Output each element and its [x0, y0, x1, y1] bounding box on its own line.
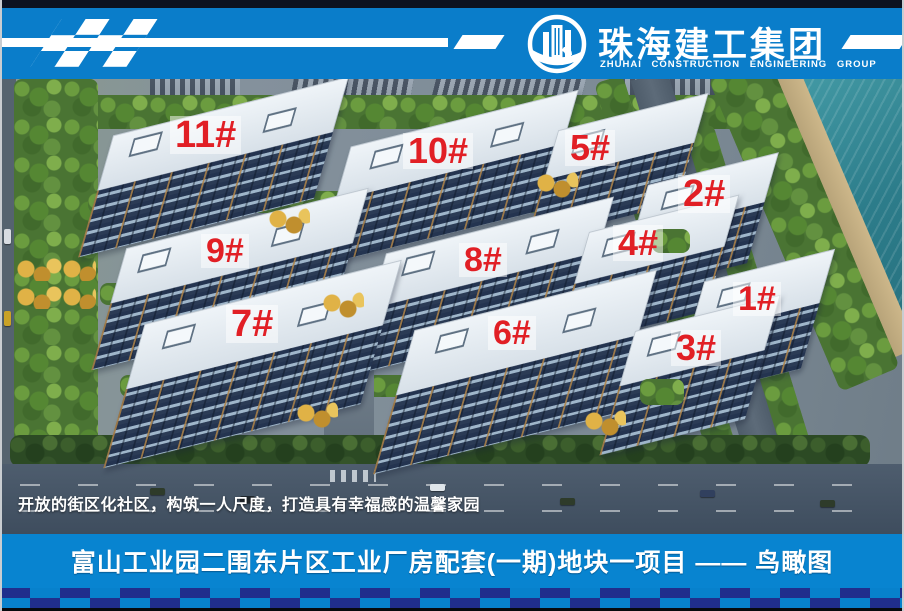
top-border	[0, 0, 904, 8]
crosswalk	[330, 470, 376, 482]
car	[560, 498, 575, 505]
car	[4, 311, 11, 326]
yellow-tree-row	[16, 285, 96, 309]
building-label-1: 1#	[733, 282, 781, 316]
checker-footer-pattern	[0, 588, 904, 608]
slide-page: 珠海建工集团 ZHUHAI CONSTRUCTION ENGINEERING G…	[0, 0, 904, 611]
side-edge-left	[0, 0, 2, 611]
render-caption: 开放的街区化社区，构筑一人尺度，打造具有幸福感的温馨家园	[18, 491, 480, 515]
car	[4, 229, 11, 244]
car	[820, 500, 835, 507]
yellow-tree-cluster	[584, 409, 626, 437]
checkered-flag-icon	[30, 19, 157, 67]
project-title: 富山工业园二围东片区工业厂房配套(一期)地块一项目 —— 鸟瞰图	[71, 543, 834, 579]
tree-cluster	[640, 379, 684, 405]
building-label-10: 10#	[403, 133, 473, 169]
aerial-render: 11# 10# 5# 2# 4# 9# 8# 1# 7# 6# 3# 开放的街区…	[0, 79, 904, 534]
building-label-8: 8#	[459, 243, 507, 277]
company-name-en: ZHUHAI CONSTRUCTION ENGINEERING GROUP	[600, 59, 900, 70]
building-label-6: 6#	[488, 316, 536, 350]
yellow-tree-cluster	[296, 401, 338, 429]
lane-marking	[20, 484, 880, 486]
car	[700, 490, 715, 497]
header-divider-dash-left	[453, 35, 504, 49]
building-label-11: 11#	[170, 116, 241, 154]
yellow-tree-cluster	[268, 207, 310, 235]
building-label-7: 7#	[226, 305, 278, 343]
building-label-9: 9#	[201, 234, 249, 268]
building-label-5: 5#	[565, 130, 615, 166]
header-bar: 珠海建工集团 ZHUHAI CONSTRUCTION ENGINEERING G…	[0, 8, 904, 79]
building-label-3: 3#	[671, 330, 721, 366]
company-logo-icon	[526, 13, 588, 75]
building-label-4: 4#	[613, 225, 663, 261]
car	[430, 484, 445, 491]
yellow-tree-cluster	[536, 171, 578, 199]
title-bar: 富山工业园二围东片区工业厂房配套(一期)地块一项目 —— 鸟瞰图	[0, 534, 904, 588]
yellow-tree-cluster	[322, 291, 364, 319]
yellow-tree-row	[16, 257, 96, 281]
building-label-2: 2#	[678, 175, 730, 213]
